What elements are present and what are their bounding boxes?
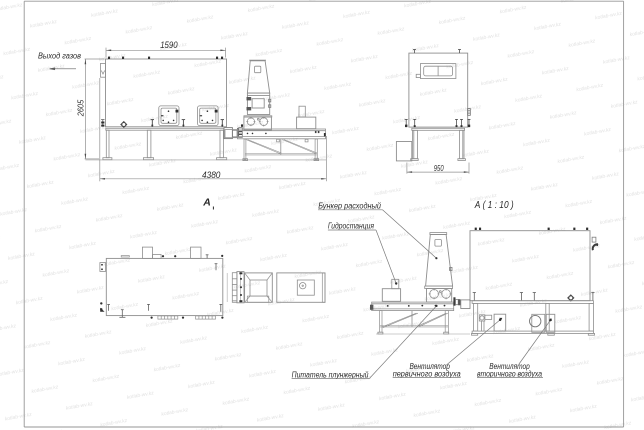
- svg-text:А ( 1 : 10 ): А ( 1 : 10 ): [474, 200, 514, 211]
- svg-text:Бункер расходный: Бункер расходный: [318, 202, 381, 211]
- svg-text:А: А: [202, 197, 211, 209]
- svg-text:Выход газов: Выход газов: [38, 52, 81, 61]
- svg-text:4380: 4380: [202, 170, 221, 181]
- svg-text:вторичного воздуха: вторичного воздуха: [477, 369, 542, 378]
- svg-text:Питатель плунжерный: Питатель плунжерный: [292, 370, 369, 379]
- svg-text:1590: 1590: [160, 40, 177, 50]
- svg-text:950: 950: [434, 164, 444, 173]
- svg-text:Гидростанция: Гидростанция: [328, 221, 375, 230]
- svg-text:2605: 2605: [76, 100, 86, 118]
- svg-text:первичного воздуха: первичного воздуха: [393, 369, 462, 378]
